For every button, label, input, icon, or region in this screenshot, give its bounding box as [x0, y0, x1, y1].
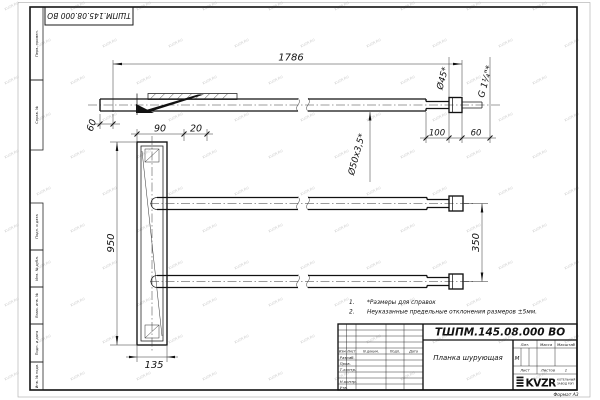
- dim-90-20: 90 20: [131, 124, 213, 144]
- plank: [137, 136, 167, 351]
- titleblock-part-name: Планка шурующая: [433, 354, 502, 362]
- row-nkontr: Н.контр.: [340, 379, 357, 384]
- dim-pipe-spacing: 350: [464, 204, 488, 282]
- stamp-podp-data-1: Подп. и дата: [35, 214, 39, 238]
- col-list: Лист: [346, 350, 357, 354]
- format-label: Формат А3: [553, 392, 578, 398]
- stamp-podp-data-2: Подп. и дата: [35, 331, 39, 355]
- col-ndoc: N докум.: [363, 350, 379, 354]
- top-stamp-box: ТШПМ.145.08.000 ВО: [45, 7, 133, 25]
- dim-20-text: 20: [190, 124, 202, 135]
- cad-drawing-canvas: Перв. примен. Справ. № Подп. и дата Инв.…: [0, 0, 600, 400]
- dim-60-right-text: 60: [471, 129, 482, 139]
- col-podp: Подп.: [390, 350, 400, 354]
- massa-header: Масса: [540, 342, 553, 347]
- dim-135-text: 135: [144, 360, 163, 371]
- dim-350-text: 350: [471, 233, 482, 252]
- kvzr-logo-sub2: ЗАВОД РЭП: [557, 382, 574, 386]
- titleblock-doc-number: ТШПМ.145.08.000 ВО: [435, 327, 565, 339]
- col-izm: Изм: [339, 350, 346, 354]
- dim-100-60: 100 60: [420, 112, 496, 143]
- side-stamp-column: Перв. примен. Справ. № Подп. и дата Инв.…: [30, 7, 43, 390]
- dim-90-text: 90: [154, 124, 166, 135]
- note-1-number: 1.: [349, 300, 355, 306]
- front-pipe-lower: [150, 274, 473, 289]
- kvzr-logo-text: KVZR: [526, 378, 557, 390]
- stamp-inv-dubl: Инв. № дубл.: [35, 256, 39, 281]
- label-pipe-spec: Ø50x3,5*: [346, 112, 372, 182]
- kvzr-logo: KVZR КОТЕЛЬНЫЙ ЗАВОД РЭП: [517, 376, 576, 389]
- listov-value: 1: [565, 367, 567, 372]
- front-view: [137, 136, 473, 351]
- note-2-number: 2.: [349, 310, 355, 316]
- listov-label: Листов: [540, 367, 556, 372]
- dim-plank-height: 950: [106, 142, 136, 345]
- label-tip-diameter: Ø45*: [434, 57, 451, 97]
- lit-value: М: [515, 356, 520, 362]
- stamp-sprav-no: Справ. №: [35, 106, 39, 124]
- dim-overhang-60: 60: [85, 114, 120, 133]
- drawing-sheet: KVZR.RUKVZR.RUKVZR.RUKVZR.RUKVZR.RUKVZR.…: [0, 0, 600, 400]
- hook-bracket: [136, 94, 237, 116]
- notes: 1. *Размеры для справок 2. Неуказанные п…: [349, 300, 537, 316]
- row-tkontr: Т.контр.: [340, 367, 356, 372]
- note-2-text: Неуказанные предельные отклонения размер…: [367, 310, 537, 316]
- label-pipe-spec-text: Ø50x3,5*: [346, 132, 368, 178]
- dim-100-text: 100: [429, 129, 445, 139]
- row-prov: Пров.: [340, 361, 351, 366]
- stamp-perv-primen: Перв. примен.: [35, 30, 39, 57]
- lit-header: Лит.: [520, 342, 530, 347]
- front-pipe-upper: [150, 196, 473, 211]
- dim-60-left-text: 60: [85, 118, 99, 133]
- row-utv: Утв.: [340, 385, 348, 390]
- dim-total-length: 1786: [113, 53, 462, 113]
- list-label: Лист: [519, 367, 530, 372]
- stamp-vzam-inv: Взам. инв. №: [35, 293, 39, 318]
- col-data: Дата: [408, 350, 418, 354]
- label-thread-text: G 1¼"*: [477, 64, 495, 99]
- note-1-text: *Размеры для справок: [367, 300, 436, 306]
- masshtab-header: Масштаб: [557, 342, 576, 347]
- top-stamp-number: ТШПМ.145.08.000 ВО: [47, 11, 131, 20]
- row-razrab: Разраб.: [340, 355, 355, 360]
- dim-950-text: 950: [106, 233, 117, 252]
- top-view-pipe: [88, 94, 500, 116]
- stamp-inv-podl: Инв. № подл.: [35, 364, 39, 389]
- dim-1786-text: 1786: [278, 53, 303, 64]
- title-block: ТШПМ.145.08.000 ВО Планка шурующая Изм Л…: [338, 324, 577, 390]
